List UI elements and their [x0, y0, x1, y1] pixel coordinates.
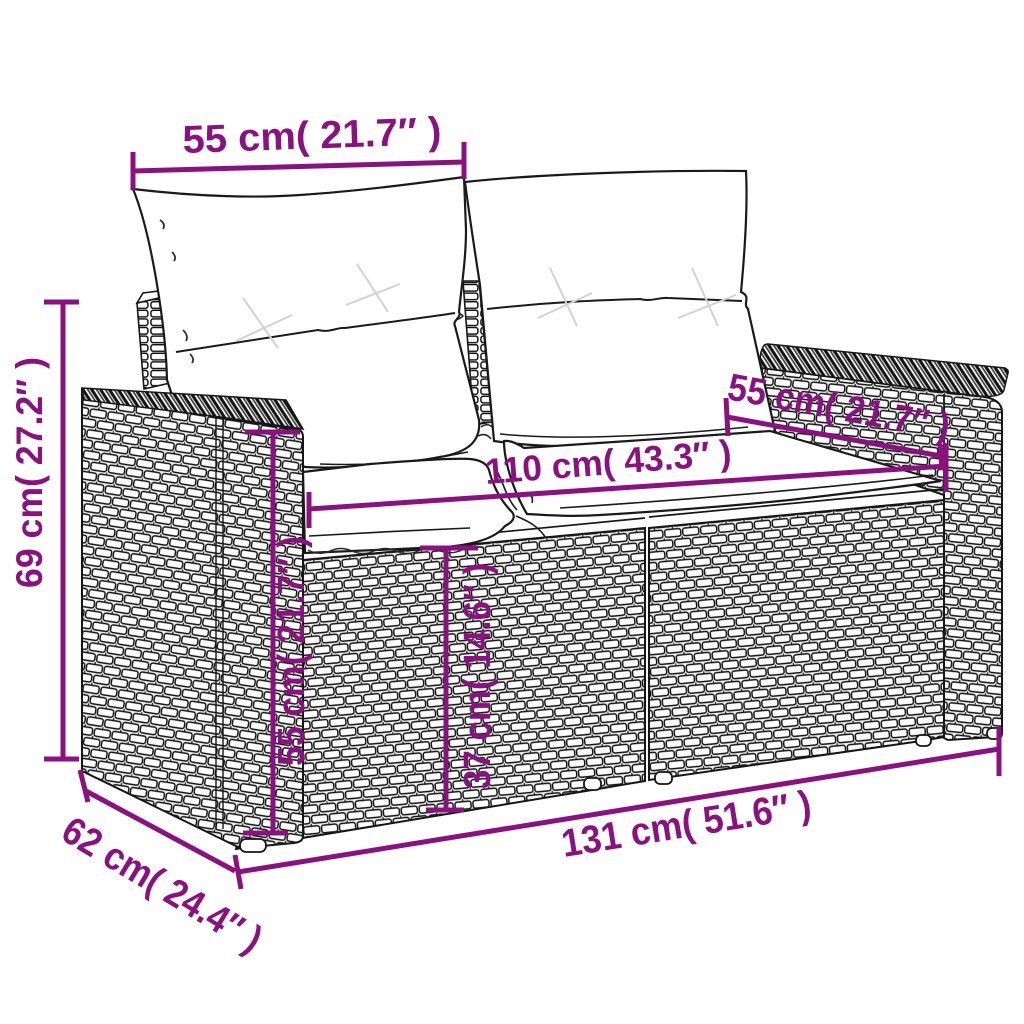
svg-text:69 cm( 27.2″ ): 69 cm( 27.2″ )	[9, 357, 50, 588]
svg-text:37 cm( 14.6″ ): 37 cm( 14.6″ )	[457, 563, 499, 789]
svg-text:55 cm( 21.7″ ): 55 cm( 21.7″ )	[271, 536, 313, 766]
svg-text:55 cm( 21.7″ ): 55 cm( 21.7″ )	[182, 110, 442, 162]
